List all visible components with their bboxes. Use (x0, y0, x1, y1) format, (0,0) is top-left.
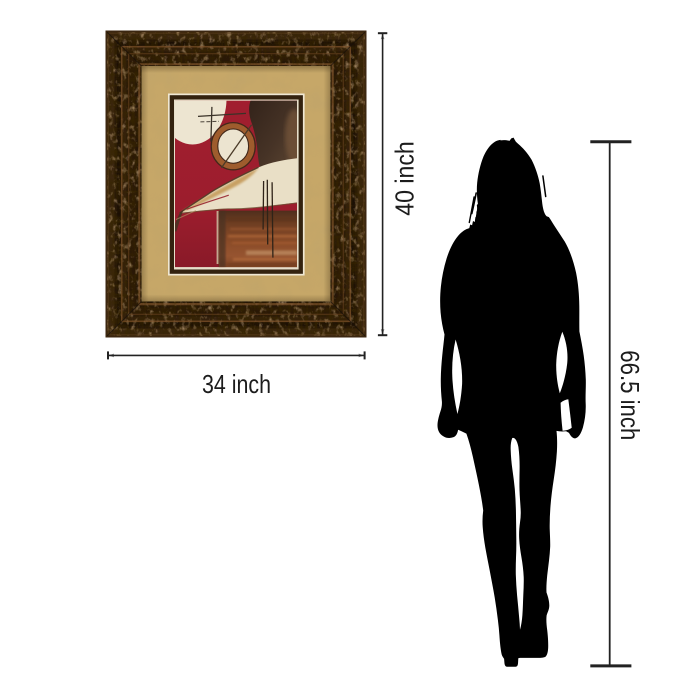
svg-text:34 inch: 34 inch (202, 369, 271, 399)
svg-text:66.5 inch: 66.5 inch (615, 350, 645, 440)
svg-text:40 inch: 40 inch (390, 141, 420, 216)
